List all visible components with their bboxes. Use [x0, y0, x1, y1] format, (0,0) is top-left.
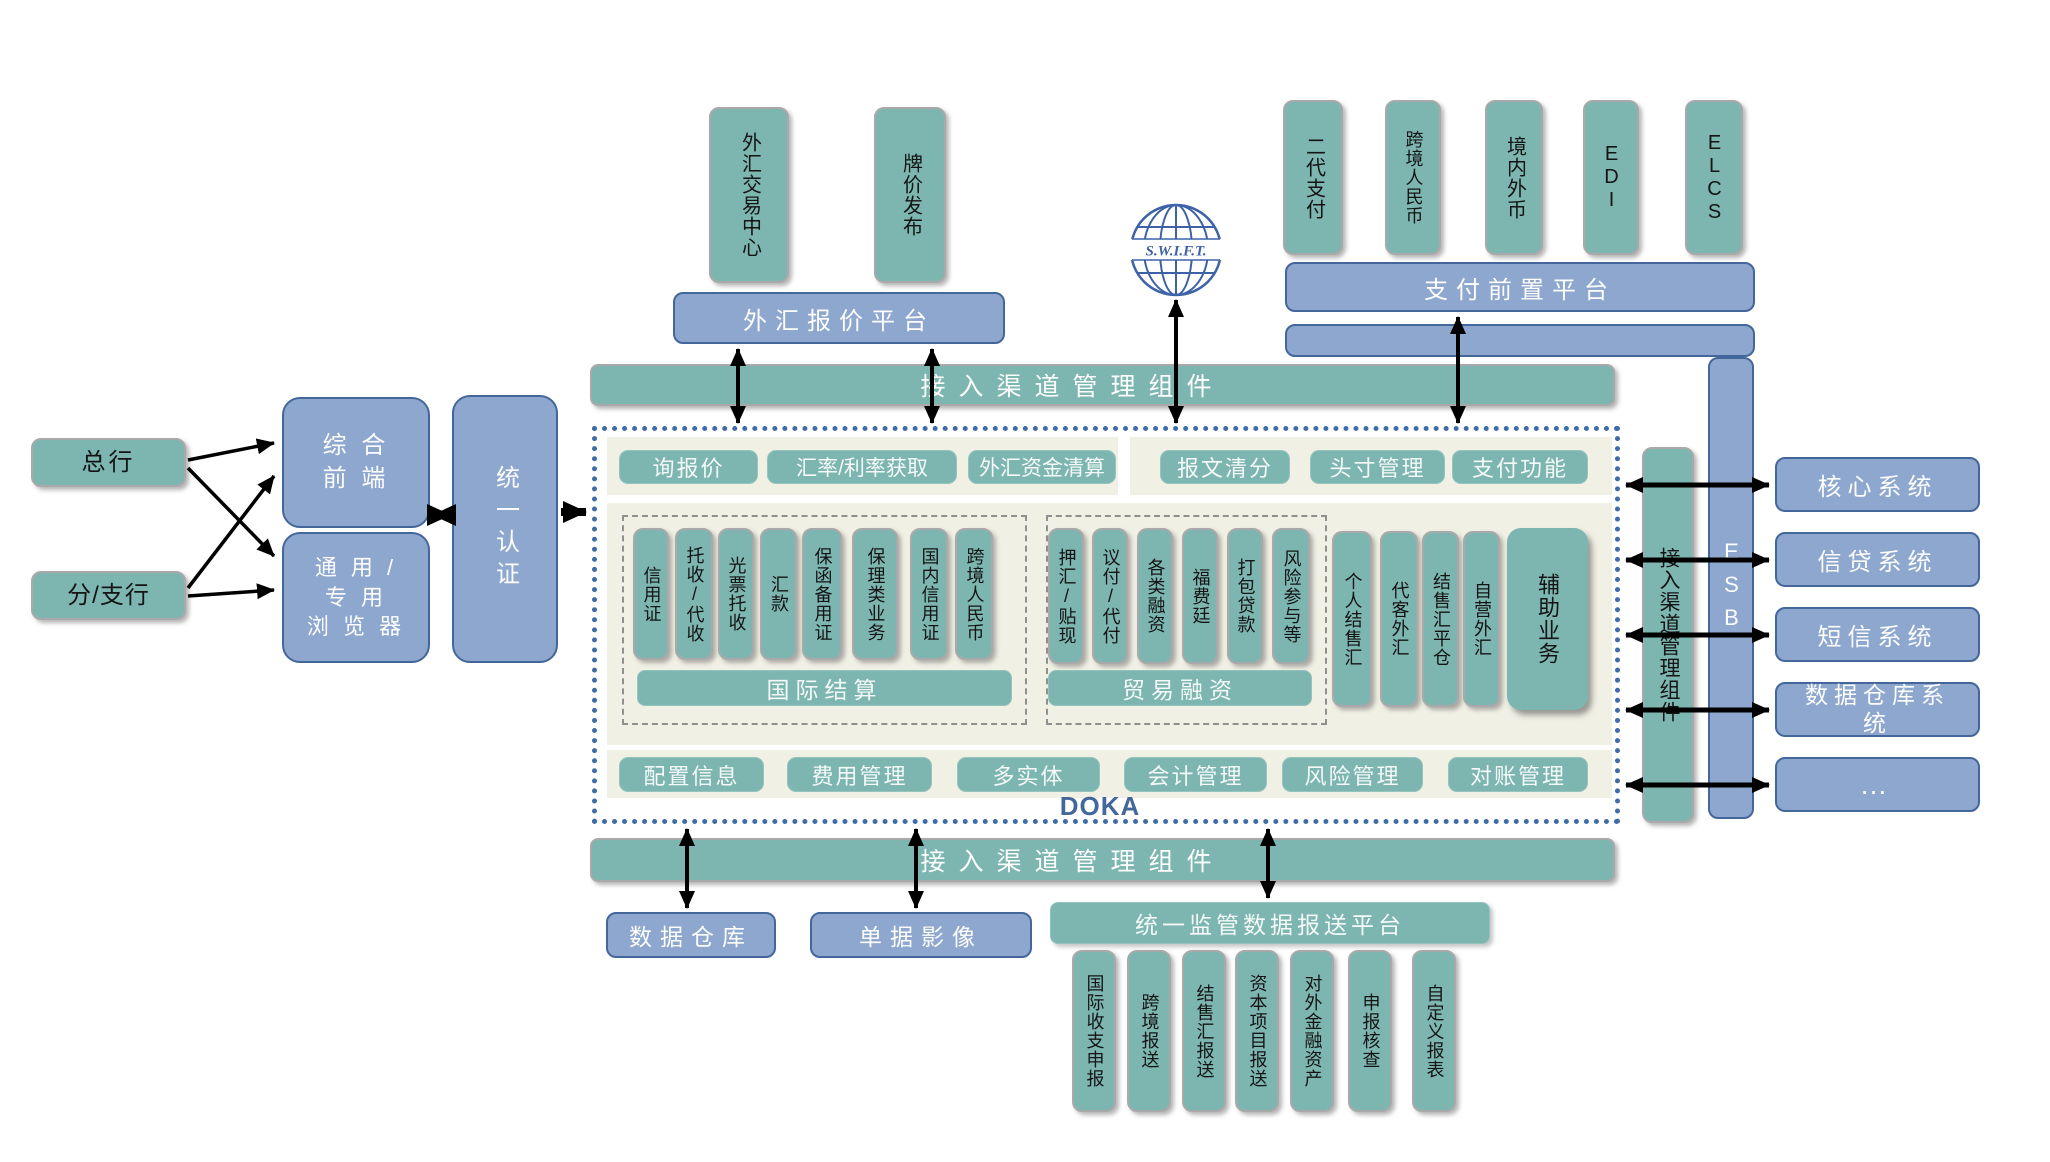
btn-quote-inquiry: 询报价: [619, 450, 758, 484]
btn-fee-mgmt: 费用管理: [787, 757, 932, 792]
box-bill-discount: 押汇/贴现: [1048, 528, 1084, 664]
doka-brand-label: DOKA: [1055, 794, 1145, 818]
bar-channel-top: 接入渠道管理组件: [590, 364, 1615, 406]
box-foreign-financial-assets: 对外金融资产: [1290, 950, 1334, 1112]
box-crossborder-report: 跨境报送: [1127, 950, 1171, 1112]
bar-fx-quote-platform: 外汇报价平台: [673, 292, 1005, 344]
box-guarantee-standby-lc: 保函备用证: [802, 528, 842, 660]
box-risk-participation: 风险参与等: [1272, 528, 1310, 664]
bar-regulatory-platform: 统一监管数据报送平台: [1050, 902, 1490, 944]
bar-channel-right: 接入渠道管理组件: [1642, 447, 1694, 823]
box-crossborder-rmb: 跨境人民币: [1385, 100, 1441, 255]
box-letter-of-credit: 信用证: [633, 528, 669, 660]
box-fx-position-squaring: 结售汇平仓: [1422, 531, 1459, 707]
box-various-financing: 各类融资: [1137, 528, 1173, 664]
btn-risk-mgmt: 风险管理: [1282, 757, 1423, 792]
box-edi: EDI: [1583, 100, 1639, 255]
btn-config-info: 配置信息: [619, 757, 764, 792]
arrow-headoffice-browser: [188, 468, 274, 556]
box-data-warehouse-system: 数据仓库系统: [1775, 682, 1980, 737]
box-capital-account-report: 资本项目报送: [1235, 950, 1279, 1112]
btn-payment-function: 支付功能: [1452, 450, 1588, 484]
box-fx-trading-center: 外汇交易中心: [709, 107, 789, 283]
swift-label: S.W.I.F.T.: [1145, 244, 1206, 260]
box-price-publish: 牌价发布: [874, 107, 946, 283]
box-bop-declaration: 国际收支申报: [1072, 950, 1116, 1112]
box-personal-fx-settlement: 个人结售汇: [1332, 531, 1372, 707]
box-factoring: 保理类业务: [852, 528, 898, 660]
bar-payment-connector: [1285, 324, 1755, 357]
box-browser: 通 用 / 专 用 浏 览 器: [282, 532, 430, 663]
box-client-fx: 代客外汇: [1380, 531, 1418, 707]
arrow-branch-browser: [188, 590, 274, 596]
swift-logo: S.W.I.F.T.: [1128, 202, 1224, 298]
architecture-diagram: 外汇交易中心 牌价发布 外汇报价平台 S.W.I.F.T. 二代支付 跨境人民币…: [0, 0, 2050, 1162]
box-unified-auth: 统一认证: [452, 395, 558, 663]
box-forfaiting: 福费廷: [1182, 528, 1218, 664]
box-integrated-frontend: 综 合 前 端: [282, 397, 430, 528]
box-packing-loan: 打包贷款: [1227, 528, 1263, 664]
btn-reconciliation-mgmt: 对账管理: [1448, 757, 1588, 792]
bar-intl-settlement: 国际结算: [637, 670, 1012, 706]
box-negotiation-payment: 议付/代付: [1092, 528, 1128, 664]
btn-fx-fund-clearing: 外汇资金清算: [968, 450, 1116, 484]
bar-payment-front-platform: 支付前置平台: [1285, 262, 1755, 312]
box-other-systems: …: [1775, 757, 1980, 812]
box-domestic-lc: 国内信用证: [910, 528, 948, 660]
btn-accounting-mgmt: 会计管理: [1124, 757, 1267, 792]
box-head-office: 总行: [31, 438, 186, 487]
btn-position-mgmt: 头寸管理: [1310, 450, 1445, 484]
box-gen2-payment: 二代支付: [1283, 100, 1343, 255]
box-branch: 分/支行: [31, 571, 186, 620]
bar-trade-finance: 贸易融资: [1048, 670, 1312, 706]
box-data-warehouse: 数据仓库: [606, 912, 776, 958]
box-clean-collection: 光票托收: [718, 528, 754, 660]
box-crossborder-rmb-settle: 跨境人民币: [955, 528, 993, 660]
arrow-branch-frontend: [188, 476, 274, 588]
arrow-headoffice-frontend: [188, 443, 274, 460]
btn-rate-fetch: 汇率/利率获取: [767, 450, 957, 484]
box-document-imaging: 单据影像: [810, 912, 1032, 958]
bar-channel-bottom: 接入渠道管理组件: [590, 838, 1615, 882]
box-core-system: 核心系统: [1775, 457, 1980, 512]
box-domestic-fx: 境内外币: [1485, 100, 1543, 255]
bar-esb: ESB: [1708, 357, 1754, 819]
box-auxiliary-business: 辅助业务: [1507, 528, 1588, 710]
btn-multi-entity: 多实体: [957, 757, 1100, 792]
box-elcs: ELCS: [1685, 100, 1743, 255]
box-proprietary-fx: 自营外汇: [1463, 531, 1500, 707]
box-collection: 托收/代收: [675, 528, 713, 660]
box-credit-system: 信贷系统: [1775, 532, 1980, 587]
box-sms-system: 短信系统: [1775, 607, 1980, 662]
box-custom-reports: 自定义报表: [1412, 950, 1456, 1112]
box-remittance: 汇款: [760, 528, 797, 660]
box-fx-settlement-report: 结售汇报送: [1182, 950, 1226, 1112]
box-declaration-check: 申报核查: [1348, 950, 1392, 1112]
btn-message-sorting: 报文清分: [1160, 450, 1290, 484]
